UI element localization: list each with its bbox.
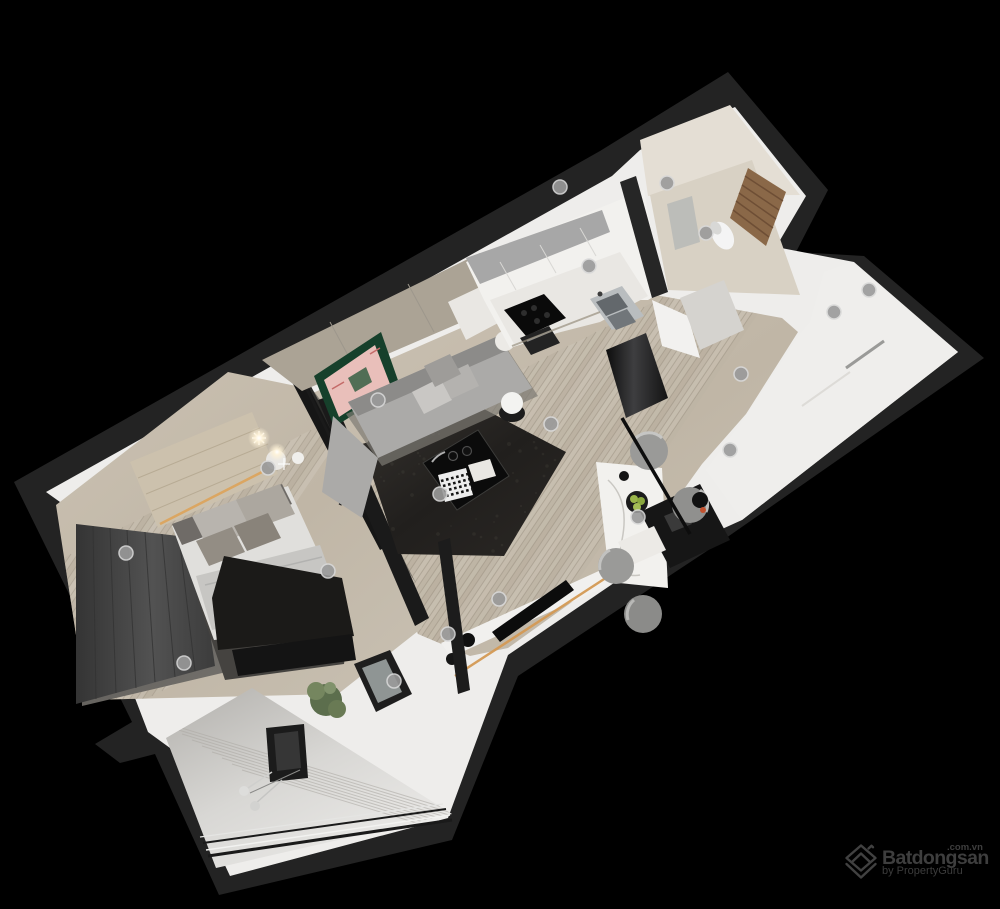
svg-text:by PropertyGuru: by PropertyGuru (882, 865, 963, 877)
svg-text:.com.vn: .com.vn (947, 842, 983, 853)
